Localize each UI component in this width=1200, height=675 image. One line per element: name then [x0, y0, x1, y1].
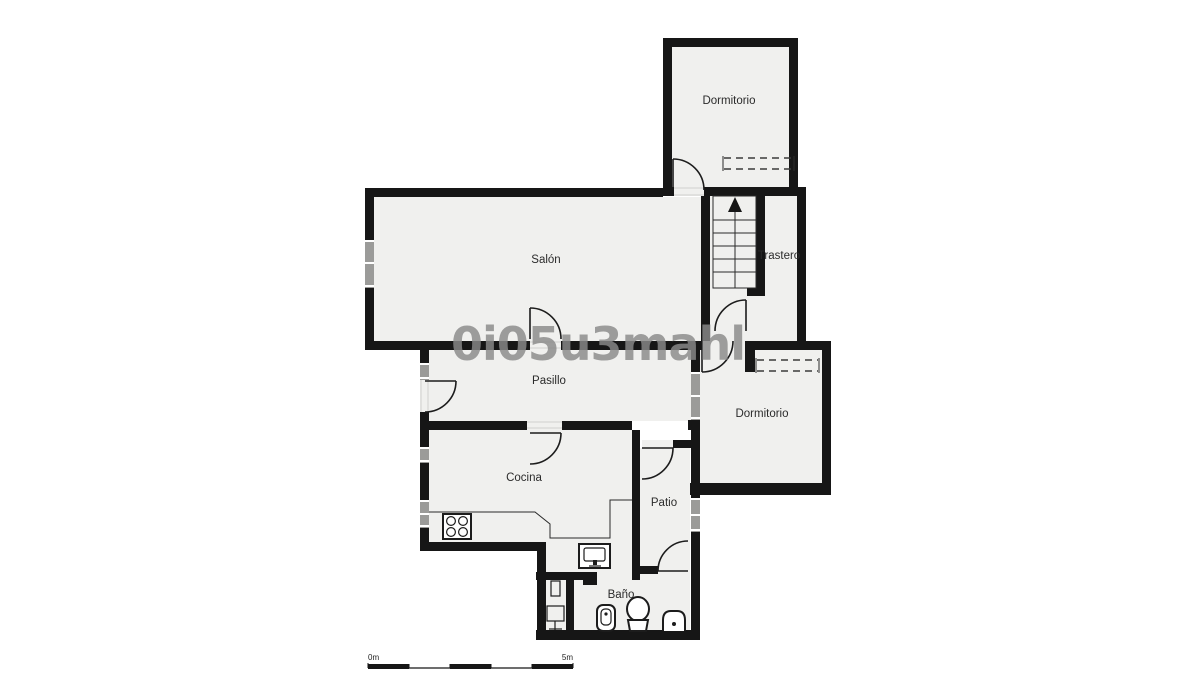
label-dormitorio-top: Dormitorio [702, 95, 755, 107]
label-dormitorio-right: Dormitorio [735, 408, 788, 420]
label-pasillo: Pasillo [532, 375, 566, 387]
floor-dormitorio-top [672, 47, 789, 188]
window-pasillo-left [420, 363, 429, 380]
washbasin-icon [663, 611, 685, 631]
label-trastero: Trastero [758, 250, 800, 262]
window-patio-right [691, 498, 700, 532]
label-cocina: Cocina [506, 472, 542, 484]
floorplan-image: Dormitorio Salón Trastero Pasillo Dormit… [0, 0, 1200, 675]
watermark-text: 0i05u3mahl [451, 317, 745, 371]
kitchen-sink-icon [579, 544, 610, 568]
label-patio: Patio [651, 497, 677, 509]
floorplan-drawing: Dormitorio Salón Trastero Pasillo Dormit… [0, 0, 1200, 675]
label-salon: Salón [531, 254, 560, 266]
scale-bar: 0m 5m [368, 653, 573, 669]
scale-end-label: 5m [562, 653, 573, 662]
window-cocina-left-lower [420, 500, 429, 528]
stove-icon [443, 514, 471, 539]
window-salon-left [365, 240, 374, 288]
toilet-icon [627, 597, 649, 631]
window-pasillo-dormitorio [691, 372, 700, 420]
window-cocina-left-upper [420, 447, 429, 463]
scale-start-label: 0m [368, 653, 379, 662]
bidet-icon [597, 605, 615, 631]
label-bano: Baño [608, 589, 635, 601]
